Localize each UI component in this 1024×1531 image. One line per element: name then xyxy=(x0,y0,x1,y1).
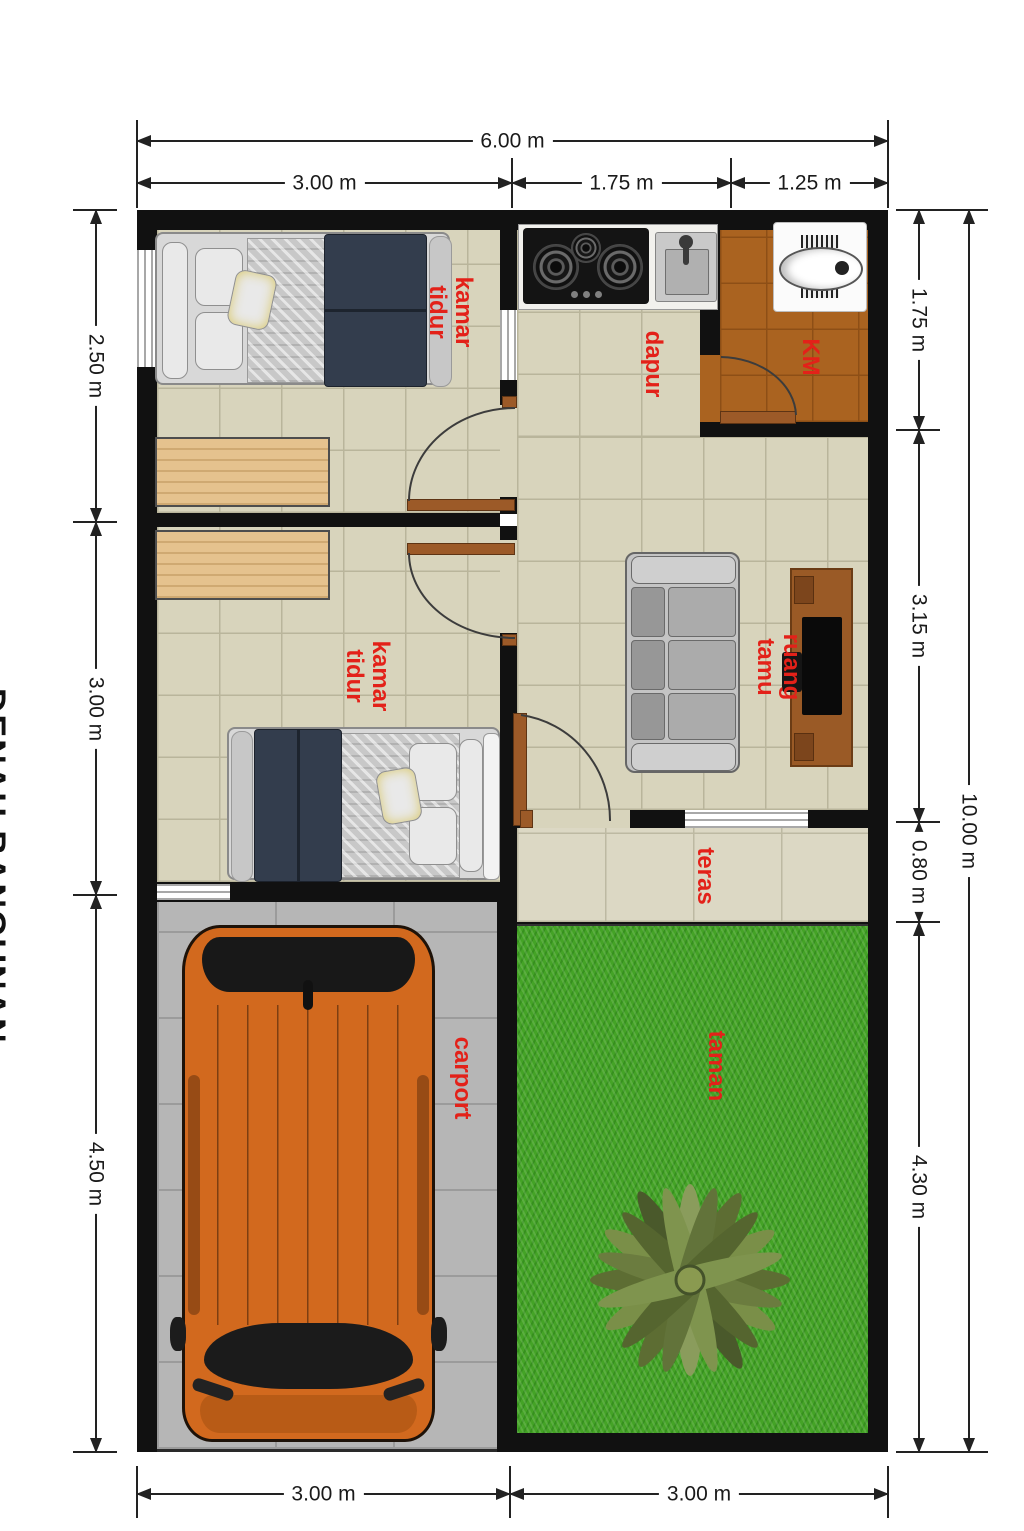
dim-right-seg1: 1.75 m xyxy=(918,210,920,430)
floor-plan-canvas: DENAH BANGUNAN 6.00 m 3.00 m 1.75 m 1.25… xyxy=(0,0,1024,1531)
dim-top-total: 6.00 m xyxy=(137,140,888,142)
dim-tick xyxy=(73,521,117,523)
arrow-left-icon xyxy=(136,177,151,189)
car-roof xyxy=(217,1005,400,1325)
dim-right-total: 10.00 m xyxy=(968,210,970,1452)
arrow-up-icon xyxy=(90,894,102,909)
car-front-bumper xyxy=(200,1395,417,1433)
dim-label: 2.50 m xyxy=(86,326,107,406)
dim-left-seg2: 3.00 m xyxy=(95,522,97,895)
dim-top-seg2: 1.75 m xyxy=(512,182,731,184)
dim-tick xyxy=(896,1451,988,1453)
arrow-left-icon xyxy=(136,135,151,147)
dim-tick xyxy=(887,120,889,208)
arrow-up-icon xyxy=(90,521,102,536)
building-plan xyxy=(137,210,888,1452)
dim-label: 6.00 m xyxy=(472,131,552,152)
car-antenna xyxy=(303,980,313,1010)
arrow-up-icon xyxy=(913,429,925,444)
arrow-left-icon xyxy=(511,177,526,189)
dim-tick xyxy=(896,821,940,823)
car-side-trim xyxy=(188,1075,200,1315)
dim-tick xyxy=(73,1451,117,1453)
dim-label: 10.00 m xyxy=(959,785,980,877)
dim-label: 1.75 m xyxy=(581,173,661,194)
dim-tick xyxy=(511,158,513,208)
car xyxy=(182,925,435,1442)
bedroom1-label: kamar tidur xyxy=(424,277,476,348)
dim-tick xyxy=(73,209,117,211)
carport-label: carport xyxy=(449,1037,475,1120)
dim-tick xyxy=(136,1466,138,1518)
dim-label: 0.80 m xyxy=(909,832,930,912)
side-title: DENAH BANGUNAN xyxy=(0,688,12,1045)
dim-label: 3.15 m xyxy=(909,586,930,666)
bedroom2-label: kamar tidur xyxy=(341,641,393,712)
dim-label: 3.00 m xyxy=(283,1484,363,1505)
dim-tick xyxy=(730,158,732,208)
dim-bottom-seg1: 3.00 m xyxy=(137,1493,510,1495)
dim-label: 3.00 m xyxy=(659,1484,739,1505)
arrow-up-icon xyxy=(963,209,975,224)
arrow-left-icon xyxy=(730,177,745,189)
arrow-left-icon xyxy=(136,1488,151,1500)
dim-tick xyxy=(136,120,138,208)
dim-tick xyxy=(896,209,988,211)
dim-tick xyxy=(73,894,117,896)
arrow-up-icon xyxy=(913,921,925,936)
dim-left-seg1: 2.50 m xyxy=(95,210,97,522)
side-mirror xyxy=(170,1317,186,1351)
dim-label: 4.50 m xyxy=(86,1133,107,1213)
dim-tick xyxy=(896,921,940,923)
dim-tick xyxy=(509,1466,511,1518)
dim-label: 1.75 m xyxy=(909,280,930,360)
palm-tree xyxy=(580,1165,800,1390)
dim-label: 1.25 m xyxy=(769,173,849,194)
terrace-label: teras xyxy=(692,847,718,904)
dim-label: 3.00 m xyxy=(86,668,107,748)
kitchen-label: dapur xyxy=(640,331,666,398)
dim-tick xyxy=(887,1466,889,1518)
dim-tick xyxy=(896,429,940,431)
dim-label: 3.00 m xyxy=(284,173,364,194)
dim-bottom-seg2: 3.00 m xyxy=(510,1493,888,1495)
arrow-left-icon xyxy=(509,1488,524,1500)
car-windshield xyxy=(204,1323,413,1389)
arrow-up-icon xyxy=(913,209,925,224)
dim-right-seg3: 0.80 m xyxy=(918,822,920,922)
dim-top-seg1: 3.00 m xyxy=(137,182,512,184)
side-mirror xyxy=(431,1317,447,1351)
dim-right-seg2: 3.15 m xyxy=(918,430,920,822)
bathroom-label: KM xyxy=(797,338,823,375)
dim-label: 4.30 m xyxy=(909,1147,930,1227)
dim-top-seg3: 1.25 m xyxy=(731,182,888,184)
living-room-label: ruang tamu xyxy=(752,602,804,732)
arrow-up-icon xyxy=(90,209,102,224)
garden-label: taman xyxy=(703,1031,729,1102)
car-side-trim xyxy=(417,1075,429,1315)
dim-right-seg4: 4.30 m xyxy=(918,922,920,1452)
dim-left-seg3: 4.50 m xyxy=(95,895,97,1452)
